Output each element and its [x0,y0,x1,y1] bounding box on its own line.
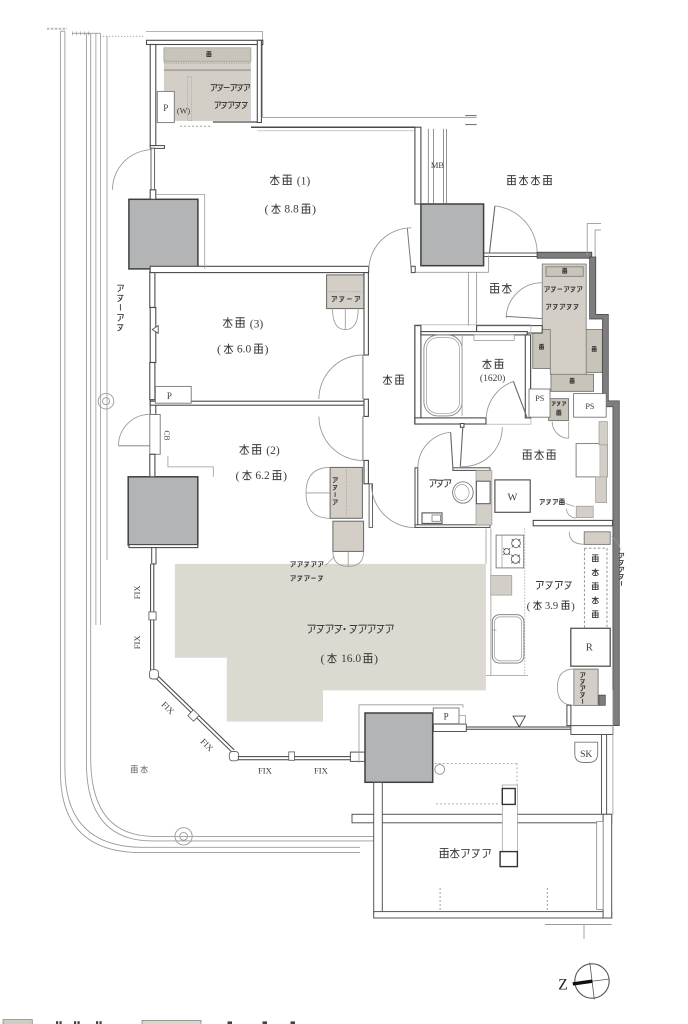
svg-text:PS: PS [535,394,545,403]
svg-text:FIX: FIX [132,585,142,600]
svg-text:): ) [265,342,269,356]
svg-text:6.0: 6.0 [237,344,252,356]
svg-text:6.2: 6.2 [255,470,270,482]
svg-text:(W): (W) [177,106,190,115]
svg-text:(: ( [321,652,325,666]
svg-text:CB: CB [163,430,172,440]
svg-text:): ) [374,652,378,666]
svg-text:SK: SK [580,749,592,760]
svg-text:(2): (2) [266,445,280,457]
svg-text:P: P [444,712,449,722]
svg-text:(: ( [236,469,240,483]
svg-text:W: W [508,492,518,503]
svg-text:FIX: FIX [314,766,329,776]
svg-text:(1): (1) [297,176,311,188]
svg-text:): ) [312,202,316,216]
svg-text:(: ( [265,202,269,216]
svg-text:P: P [167,391,172,401]
svg-text:PS: PS [585,402,595,411]
svg-text:MB: MB [431,160,445,170]
svg-text:(1620): (1620) [480,373,505,384]
svg-text:(: ( [527,601,531,613]
svg-text:(: ( [217,342,221,356]
svg-text:8.8: 8.8 [284,204,299,216]
svg-text:3.9: 3.9 [545,601,558,612]
svg-text:P: P [163,103,168,113]
svg-text:Z: Z [558,977,567,994]
svg-text:R: R [586,643,593,654]
svg-text:FIX: FIX [132,635,142,650]
svg-text:FIX: FIX [258,766,273,776]
svg-text:): ) [571,601,575,613]
svg-text:): ) [283,469,287,483]
svg-text:16.0: 16.0 [341,653,361,665]
svg-text:(3): (3) [250,318,264,330]
